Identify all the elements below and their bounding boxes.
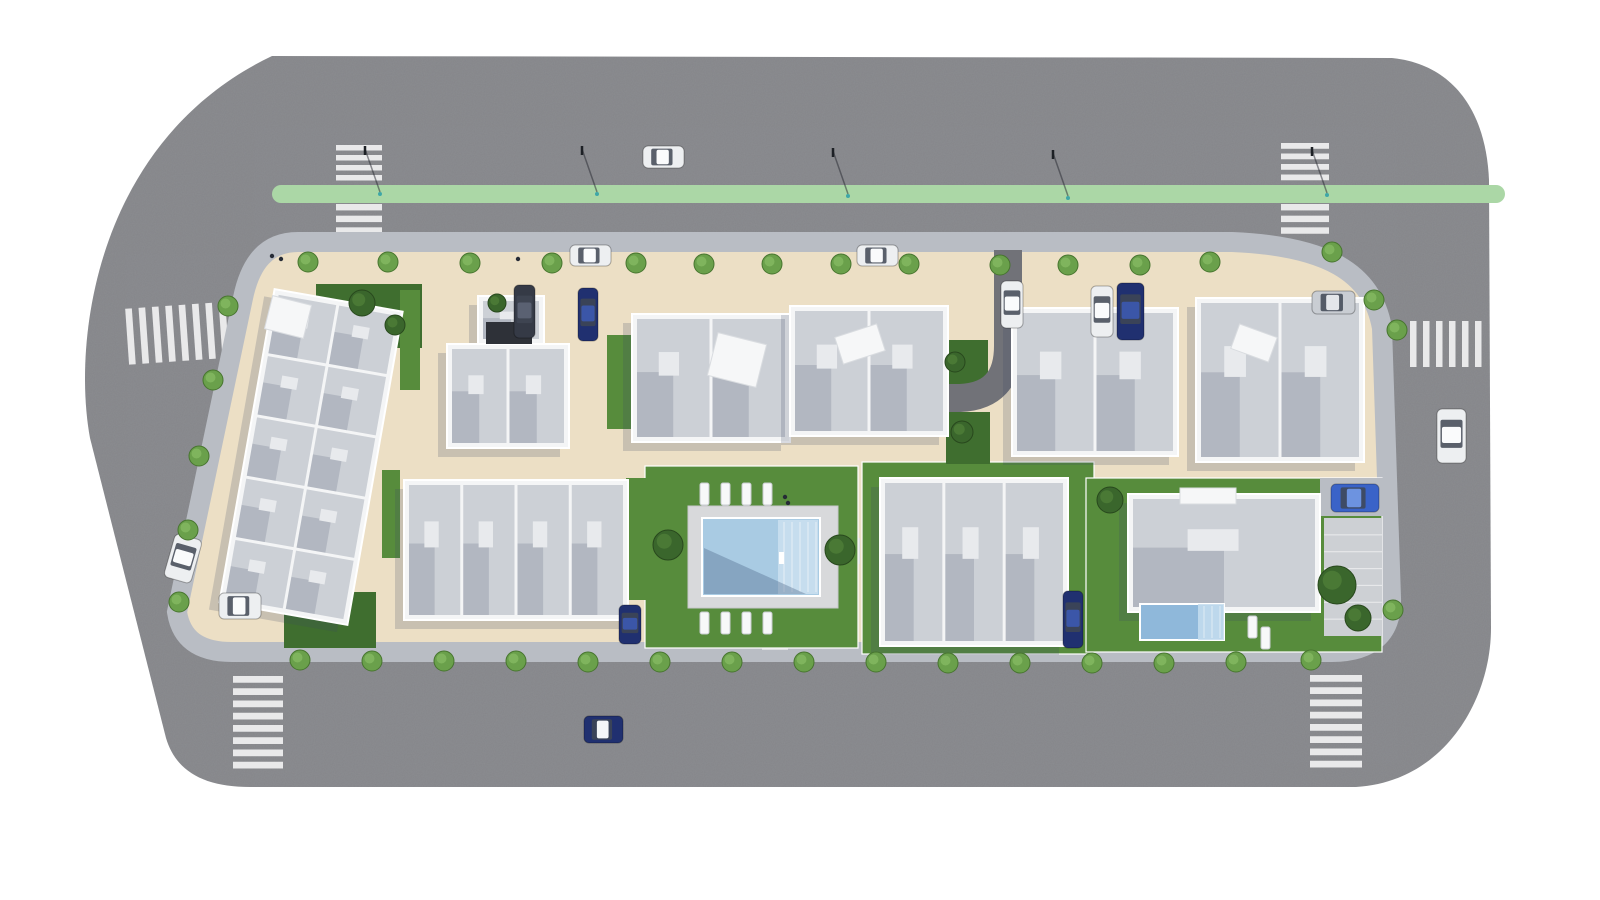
- crosswalk-stripe: [233, 713, 283, 720]
- tree-highlight: [765, 257, 775, 267]
- crosswalk-stripe: [1310, 712, 1362, 719]
- car-b4-parked-blue: [1117, 283, 1144, 340]
- roof-shade: [1133, 548, 1224, 607]
- tree-highlight: [993, 258, 1003, 268]
- car-south-road: [584, 716, 623, 743]
- street-tree: [1387, 320, 1407, 340]
- crosswalk-stripe: [1310, 675, 1362, 682]
- roof-shade: [945, 554, 974, 641]
- crosswalk-north-east-lower: [1281, 204, 1329, 234]
- car-roof: [871, 249, 883, 263]
- roof-terrace: [963, 527, 979, 559]
- car-row-south-parked: [1063, 591, 1083, 648]
- roof-terrace: [500, 312, 516, 320]
- roof-terrace: [533, 521, 547, 547]
- car-pool-south-parked: [619, 605, 641, 644]
- site-plan-render: [0, 0, 1600, 900]
- street-tree: [626, 253, 646, 273]
- tree-highlight: [1013, 656, 1023, 666]
- car-roof: [581, 305, 594, 321]
- tree-highlight: [1157, 656, 1167, 666]
- street-tree: [178, 520, 198, 540]
- roof-shade: [1097, 375, 1135, 451]
- tree-highlight: [1304, 653, 1314, 663]
- sun-lounger: [1261, 627, 1270, 649]
- apartment-b5-east: [1187, 298, 1364, 471]
- tree-highlight: [437, 654, 447, 664]
- street-tree: [650, 652, 670, 672]
- lawn-b2-west: [400, 290, 420, 390]
- apartment-center-west: [623, 314, 790, 451]
- street-tree: [1200, 252, 1220, 272]
- garden-tree: [1318, 566, 1356, 604]
- tree-highlight: [902, 257, 912, 267]
- tree-highlight: [697, 257, 707, 267]
- sun-lounger: [763, 483, 772, 505]
- garden-tree: [945, 352, 965, 372]
- tree-highlight: [1348, 608, 1361, 621]
- lamp-head: [846, 194, 850, 198]
- sun-lounger: [742, 483, 751, 505]
- sun-lounger: [721, 612, 730, 634]
- crosswalk-stripe: [336, 204, 382, 210]
- tree-highlight: [206, 373, 216, 383]
- crosswalk-north-west-lower: [336, 204, 382, 234]
- car-east-road: [1437, 409, 1466, 463]
- median-strip: [272, 185, 1505, 203]
- tree-highlight: [365, 654, 375, 664]
- crosswalk-stripe: [1462, 321, 1469, 367]
- tree-highlight: [948, 355, 958, 365]
- tree-highlight: [797, 655, 807, 665]
- street-tree: [1383, 600, 1403, 620]
- crosswalk-stripe: [1310, 700, 1362, 707]
- garden-tree: [653, 530, 683, 560]
- car-roof: [1442, 427, 1461, 443]
- street-tree: [218, 296, 238, 316]
- roof-terrace: [587, 521, 601, 547]
- street-tree: [899, 254, 919, 274]
- roof-shade: [518, 544, 544, 616]
- roof-terrace: [1188, 529, 1239, 551]
- tree-highlight: [352, 293, 365, 306]
- crosswalk-stripe: [1310, 736, 1362, 743]
- crosswalk-stripe: [233, 737, 283, 744]
- tree-highlight: [629, 256, 639, 266]
- car-parked-north-1: [570, 245, 611, 266]
- crosswalk-stripe: [336, 145, 382, 151]
- crosswalk-stripe: [1423, 321, 1430, 367]
- crosswalk-stripe: [1310, 761, 1362, 768]
- roof-terrace: [1023, 527, 1039, 559]
- roof-shade: [885, 554, 914, 641]
- tree-highlight: [381, 255, 391, 265]
- car-b4-parked-white: [1091, 286, 1113, 337]
- tree-highlight: [293, 653, 303, 663]
- tree-highlight: [1367, 293, 1377, 303]
- tree-highlight: [1100, 490, 1113, 503]
- crosswalk-stripe: [1281, 227, 1329, 233]
- street-tree: [722, 652, 742, 672]
- tree-highlight: [301, 255, 311, 265]
- tree-highlight: [869, 655, 879, 665]
- street-tree: [290, 650, 310, 670]
- sun-lounger: [700, 612, 709, 634]
- tree-highlight: [657, 534, 672, 549]
- car-roof: [623, 618, 638, 630]
- crosswalk-stripe: [1281, 164, 1329, 170]
- villa-pool: [1140, 604, 1224, 640]
- crosswalk-stripe: [1281, 204, 1329, 210]
- car-roof: [584, 249, 596, 263]
- crosswalk-stripe: [1281, 143, 1329, 149]
- street-tree: [542, 253, 562, 273]
- car-roof: [1005, 297, 1020, 311]
- roof-terrace: [1305, 346, 1327, 377]
- street-tree: [1226, 652, 1246, 672]
- crosswalk-stripe: [233, 701, 283, 708]
- roof-shade: [463, 544, 489, 616]
- car-roof: [1347, 489, 1361, 507]
- crosswalk-stripe: [233, 725, 283, 732]
- tree-highlight: [172, 595, 182, 605]
- crosswalk-stripe: [1475, 321, 1482, 367]
- street-tree: [1058, 255, 1078, 275]
- tree-highlight: [653, 655, 663, 665]
- pedestrian: [786, 501, 790, 505]
- tree-highlight: [834, 257, 844, 267]
- lamp-head: [378, 192, 382, 196]
- street-tree: [434, 651, 454, 671]
- street-tree: [460, 253, 480, 273]
- garden-tree: [951, 421, 973, 443]
- street-tree: [362, 651, 382, 671]
- street-tree: [578, 652, 598, 672]
- crosswalk-stripe: [336, 155, 382, 161]
- pedestrian: [270, 254, 274, 258]
- car-roof: [518, 302, 532, 318]
- car-roof: [597, 721, 609, 739]
- sun-lounger: [742, 612, 751, 634]
- car-roof: [1095, 303, 1110, 318]
- sun-lounger: [721, 483, 730, 505]
- garden-tree: [488, 294, 506, 312]
- roof-terrace: [526, 375, 541, 394]
- tree-highlight: [1085, 656, 1095, 666]
- tree-highlight: [490, 296, 499, 305]
- car-parked-north-2: [857, 245, 898, 266]
- roof-shade: [1282, 372, 1321, 457]
- pedestrian: [516, 257, 520, 261]
- tree-highlight: [181, 523, 191, 533]
- street-tree: [694, 254, 714, 274]
- lamp-head: [595, 192, 599, 196]
- roof-shade: [871, 365, 907, 431]
- tree-highlight: [581, 655, 591, 665]
- tree-highlight: [1323, 571, 1342, 590]
- tree-highlight: [1390, 323, 1400, 333]
- street-tree: [378, 252, 398, 272]
- garden-tree: [825, 535, 855, 565]
- car-driveway: [1001, 281, 1023, 328]
- townhouse-row-south-center: [871, 478, 1068, 655]
- tree-highlight: [1386, 603, 1396, 613]
- sun-lounger: [1248, 616, 1257, 638]
- roof-terrace: [659, 352, 679, 376]
- car-roof: [1326, 295, 1339, 310]
- crosswalk-stripe: [1410, 321, 1417, 367]
- tree-highlight: [941, 656, 951, 666]
- car-villa-parked: [1331, 484, 1379, 512]
- tree-highlight: [1061, 258, 1071, 268]
- street-tree: [1301, 650, 1321, 670]
- communal-pool: [688, 506, 838, 608]
- tree-highlight: [221, 299, 231, 309]
- roof-shade: [1017, 375, 1055, 451]
- roof-terrace: [892, 345, 912, 369]
- pedestrian: [279, 257, 283, 261]
- street-tree: [762, 254, 782, 274]
- van-b2-parked: [514, 285, 535, 338]
- crosswalk-stripe: [1310, 724, 1362, 731]
- garden-tree: [385, 315, 405, 335]
- crosswalk-stripe: [233, 762, 283, 769]
- car-b2-parked-blue: [578, 288, 598, 341]
- crosswalk-stripe: [1449, 321, 1456, 367]
- apartment-center-east: [781, 306, 948, 445]
- street-tree: [1130, 255, 1150, 275]
- roof-shade: [572, 544, 598, 616]
- street-tree: [1154, 653, 1174, 673]
- street-tree: [831, 254, 851, 274]
- street-tree: [1010, 653, 1030, 673]
- street-tree: [506, 651, 526, 671]
- tree-highlight: [829, 539, 844, 554]
- roof-terrace: [1040, 352, 1061, 380]
- roof-shade: [510, 391, 537, 443]
- roof-shade: [1006, 554, 1035, 641]
- car-sedan-north-road: [643, 146, 684, 168]
- sun-lounger: [700, 483, 709, 505]
- roof-terrace: [424, 521, 438, 547]
- townhouse-row-south-west: [395, 480, 628, 629]
- car-roof: [1066, 610, 1079, 627]
- street-tree: [203, 370, 223, 390]
- roof-terrace: [479, 521, 493, 547]
- garden-tree: [349, 290, 375, 316]
- garden-tree: [1097, 487, 1123, 513]
- street-tree: [866, 652, 886, 672]
- tree-highlight: [545, 256, 555, 266]
- tree-highlight: [725, 655, 735, 665]
- street-tree: [990, 255, 1010, 275]
- roof-terrace: [902, 527, 918, 559]
- tree-highlight: [463, 256, 473, 266]
- street-tree: [189, 446, 209, 466]
- crosswalk-stripe: [1310, 687, 1362, 694]
- tree-highlight: [509, 654, 519, 664]
- roof-shade: [637, 372, 673, 437]
- crosswalk-stripe: [1281, 216, 1329, 222]
- car-parked-west-block: [219, 593, 261, 619]
- roof-terrace: [817, 345, 837, 369]
- lamp-head: [1066, 196, 1070, 200]
- crosswalk-stripe: [233, 676, 283, 683]
- roof-shade: [1201, 372, 1240, 457]
- roof-shade: [409, 544, 435, 616]
- car-roof: [1122, 302, 1140, 319]
- tree-highlight: [1133, 258, 1143, 268]
- street-tree: [169, 592, 189, 612]
- crosswalk-stripe: [1281, 154, 1329, 160]
- site-plan-svg: [0, 0, 1600, 900]
- garden-tree: [1345, 605, 1371, 631]
- street-tree: [298, 252, 318, 272]
- lamp-head: [1325, 193, 1329, 197]
- car-roof: [233, 597, 246, 614]
- sun-lounger: [763, 612, 772, 634]
- pool-ladder: [779, 552, 784, 564]
- tree-highlight: [1203, 255, 1213, 265]
- crosswalk-stripe: [233, 688, 283, 695]
- tree-highlight: [954, 424, 965, 435]
- street-tree: [1322, 242, 1342, 262]
- street-tree: [1082, 653, 1102, 673]
- crosswalk-stripe: [1436, 321, 1443, 367]
- villa-south-east: [1119, 494, 1320, 621]
- crosswalk-stripe: [233, 750, 283, 757]
- roof-shade: [452, 391, 479, 443]
- roof-shade: [795, 365, 831, 431]
- street-tree: [794, 652, 814, 672]
- car-roof: [657, 150, 669, 165]
- tree-highlight: [192, 449, 202, 459]
- street-tree: [1364, 290, 1384, 310]
- crosswalk-stripe: [336, 216, 382, 222]
- tree-highlight: [1325, 245, 1335, 255]
- roof-feature: [1180, 488, 1236, 504]
- apartment-b2: [438, 344, 569, 457]
- crosswalk-stripe: [1310, 749, 1362, 756]
- tree-highlight: [388, 318, 398, 328]
- roof-terrace: [1119, 352, 1140, 380]
- tree-highlight: [1229, 655, 1239, 665]
- pedestrian: [783, 495, 787, 499]
- roof-terrace: [468, 375, 483, 394]
- street-tree: [938, 653, 958, 673]
- crosswalk-stripe: [336, 165, 382, 171]
- car-b5-courtyard: [1312, 291, 1355, 314]
